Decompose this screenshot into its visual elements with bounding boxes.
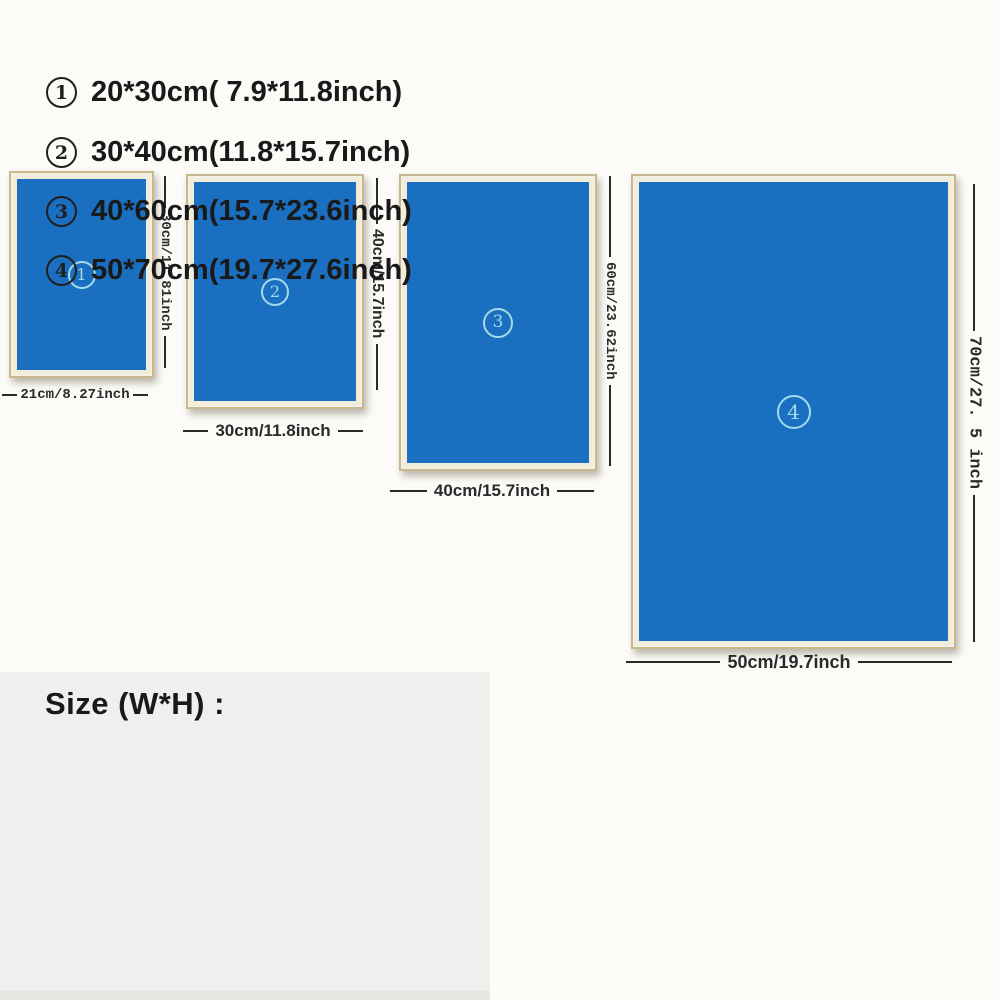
dimension-line: [338, 430, 363, 432]
height-dimension-poster-3: 60cm/23.62inch: [595, 176, 625, 466]
width-label-poster-1: 21cm/8.27inch: [20, 387, 129, 403]
dimension-line: [973, 184, 975, 331]
legend-item-size-2: 2 30*40cm(11.8*15.7inch): [46, 136, 410, 169]
width-dimension-poster-2: 30cm/11.8inch: [183, 420, 363, 442]
size-legend-panel: Size (W*H) :: [0, 672, 490, 1000]
dimension-line: [609, 176, 611, 257]
width-label-poster-3: 40cm/15.7inch: [434, 481, 550, 501]
poster-canvas-3: 3: [407, 182, 589, 463]
dimension-line: [557, 490, 594, 492]
dimension-line: [133, 394, 148, 396]
dimension-line: [164, 336, 166, 368]
circled-number-4-icon: 4: [46, 255, 77, 286]
width-label-poster-4: 50cm/19.7inch: [727, 652, 850, 673]
poster-canvas-4: 4: [639, 182, 948, 641]
circled-number-4-badge: 4: [777, 395, 811, 429]
dimension-line: [390, 490, 427, 492]
legend-item-text: 30*40cm(11.8*15.7inch): [91, 136, 410, 169]
legend-item-text: 50*70cm(19.7*27.6inch): [91, 254, 412, 287]
dimension-line: [2, 394, 17, 396]
height-dimension-poster-4: 70cm/27. 5 inch: [959, 184, 989, 642]
height-label-poster-3: 60cm/23.62inch: [602, 262, 618, 380]
legend-item-text: 40*60cm(15.7*23.6inch): [91, 195, 412, 228]
size-chart-infographic: 1 30cm/11.81inch 21cm/8.27inch 2 40cm/15…: [0, 0, 1000, 1000]
width-label-poster-2: 30cm/11.8inch: [215, 421, 330, 441]
legend-title: Size (W*H) :: [45, 686, 225, 722]
legend-item-size-3: 3 40*60cm(15.7*23.6inch): [46, 195, 412, 228]
height-label-poster-4: 70cm/27. 5 inch: [965, 336, 984, 489]
circled-number-3-badge: 3: [483, 308, 513, 338]
circled-number-3-icon: 3: [46, 196, 77, 227]
poster-40x60: 3: [399, 174, 597, 471]
circled-number-1-icon: 1: [46, 77, 77, 108]
dimension-line: [609, 385, 611, 466]
width-dimension-poster-4: 50cm/19.7inch: [626, 651, 952, 673]
width-dimension-poster-3: 40cm/15.7inch: [390, 480, 594, 502]
circled-number-2-icon: 2: [46, 137, 77, 168]
dimension-line: [973, 495, 975, 642]
legend-item-size-1: 1 20*30cm( 7.9*11.8inch): [46, 76, 402, 109]
poster-50x70: 4: [631, 174, 956, 649]
dimension-line: [183, 430, 208, 432]
width-dimension-poster-1: 21cm/8.27inch: [2, 384, 148, 406]
dimension-line: [626, 661, 720, 663]
legend-item-size-4: 4 50*70cm(19.7*27.6inch): [46, 254, 412, 287]
legend-item-text: 20*30cm( 7.9*11.8inch): [91, 76, 402, 109]
dimension-line: [376, 344, 378, 390]
dimension-line: [858, 661, 952, 663]
